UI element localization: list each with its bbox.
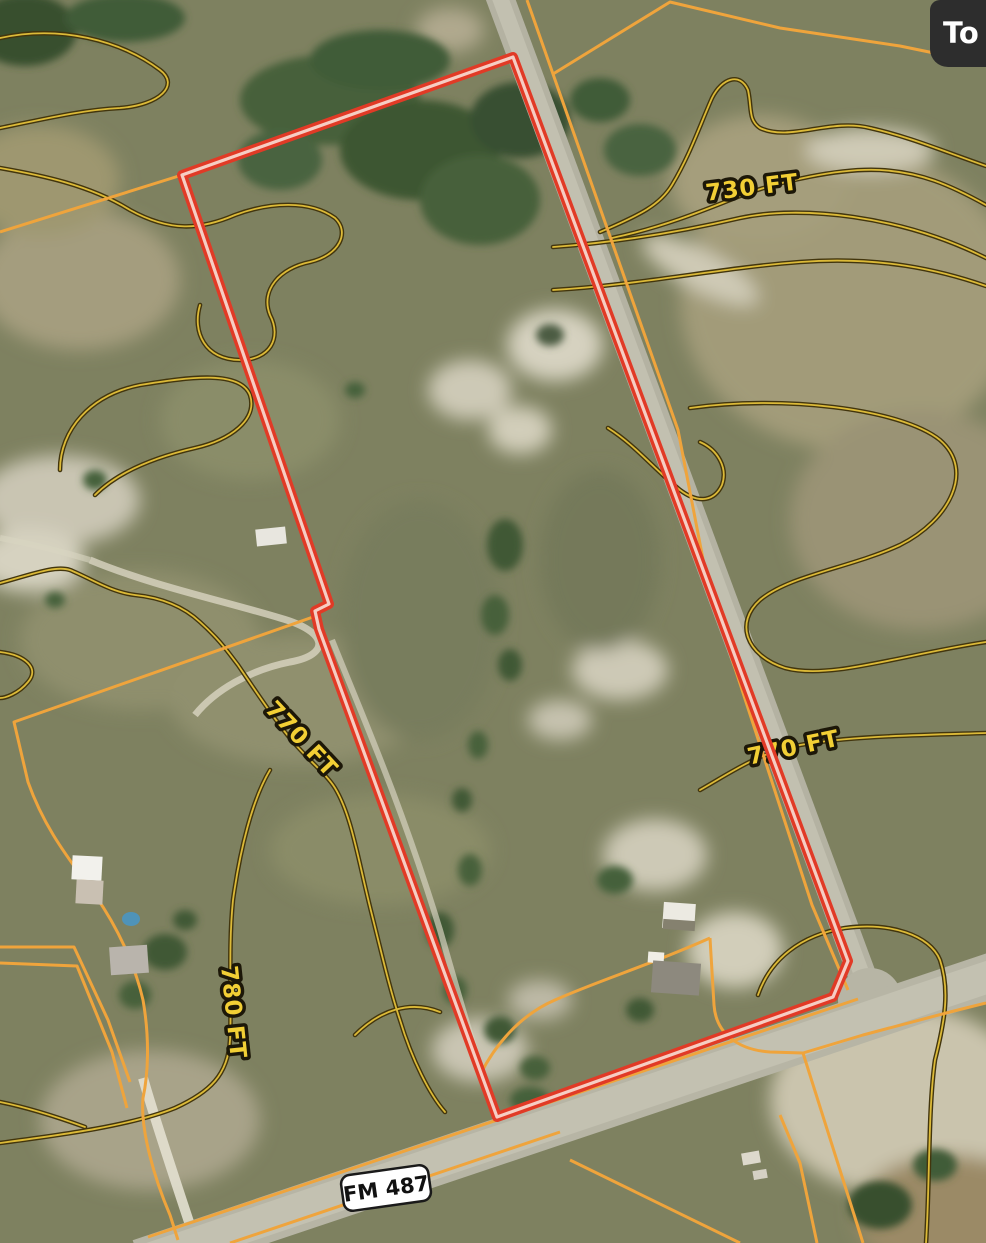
aerial-map: FM 487 730 FT 770 FT 770 FT 780 FT: [0, 0, 986, 1243]
map-container[interactable]: FM 487 730 FT 770 FT 770 FT 780 FT To: [0, 0, 986, 1243]
pool: [122, 912, 140, 926]
topo-button-label: To: [943, 16, 979, 50]
topo-button[interactable]: To: [930, 0, 986, 67]
